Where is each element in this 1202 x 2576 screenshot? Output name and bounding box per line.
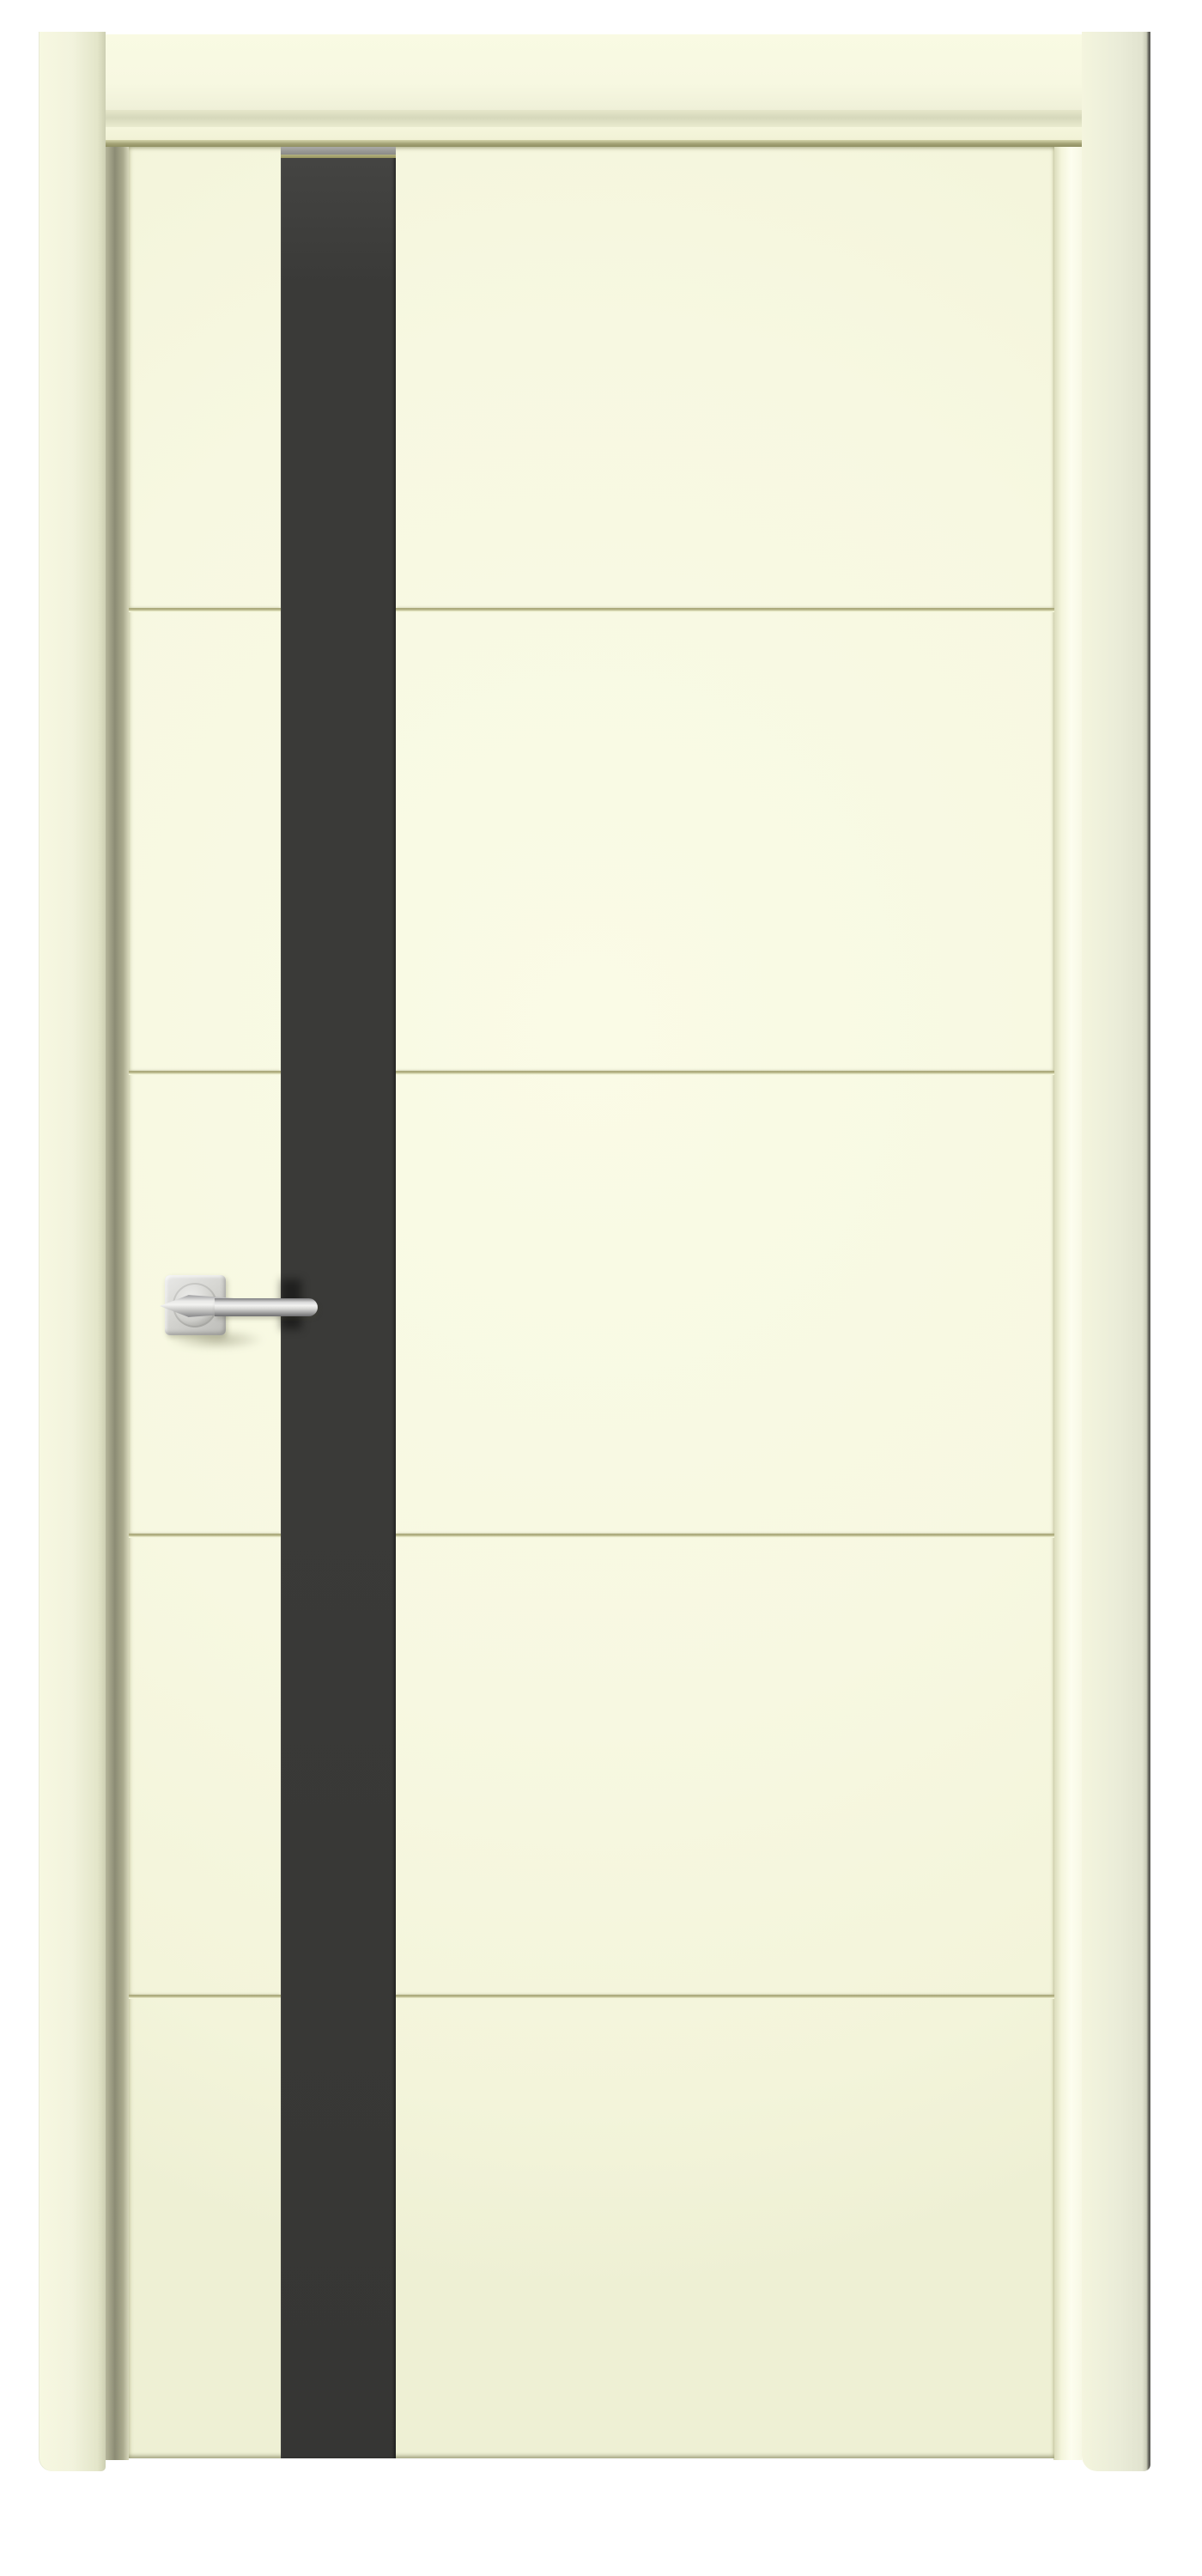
groove-segment-right [396,1534,1054,1538]
groove-segment-right [396,608,1054,612]
right-frame-casing [1082,32,1150,2471]
casing-face [106,34,1082,110]
groove-line [129,1534,1054,1538]
glass-strip-top-groove [281,155,396,158]
groove-segment-left [129,1995,281,1999]
casing-recess [106,127,1082,140]
groove-segment-left [129,1071,281,1075]
door-product-photo [0,0,1202,2576]
left-frame-casing [39,32,106,2471]
groove-line [129,1995,1054,1999]
casing-bevel [106,110,1082,127]
top-frame-casing [106,34,1082,147]
groove-segment-right [396,1071,1054,1075]
handle-lever [215,1298,318,1316]
groove-segment-left [129,608,281,612]
groove-line [129,608,1054,612]
groove-segment-left [129,1534,281,1538]
frame-reveal-right [1053,147,1082,2460]
casing-shadow-line [106,140,1082,147]
frame-reveal-left [106,137,129,2460]
groove-segment-right [396,1995,1054,1999]
groove-line [129,1071,1054,1075]
glass-strip-top-edge [281,147,396,155]
